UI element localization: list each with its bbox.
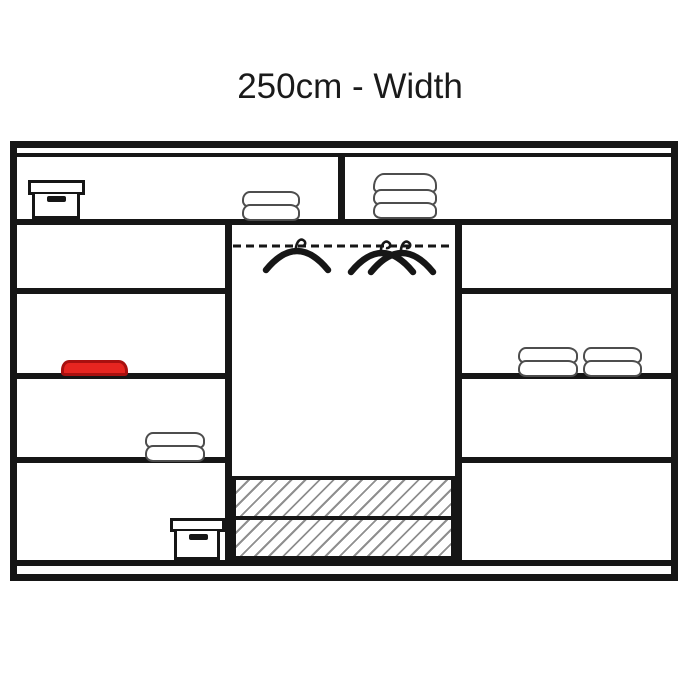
page-title: 250cm - Width — [0, 67, 700, 107]
folded-towels-icon — [373, 173, 437, 219]
top-row-divider — [338, 153, 345, 225]
storage-box-icon — [170, 518, 225, 560]
drawer-front — [236, 520, 451, 556]
right-shelf-line-3 — [459, 457, 671, 463]
left-shelf-line-1 — [17, 288, 228, 294]
hanger-icon — [266, 240, 328, 270]
red-folded-garment-icon — [61, 360, 128, 376]
box-lid — [28, 180, 85, 195]
folded-towels-icon — [583, 347, 642, 377]
storage-box-icon — [28, 180, 85, 219]
floor-line — [17, 560, 671, 566]
folded-towels-icon — [518, 347, 578, 377]
box-lid — [170, 518, 225, 532]
wardrobe-frame — [10, 141, 678, 581]
wardrobe-interior — [17, 148, 671, 574]
hanging-section — [232, 225, 455, 325]
folded-towels-icon — [145, 432, 205, 462]
box-handle-slot — [47, 196, 66, 202]
right-shelf-line-1 — [459, 288, 671, 294]
hanging-rail-and-hangers — [232, 225, 455, 325]
right-section-divider — [455, 219, 462, 566]
box-handle-slot — [189, 534, 208, 540]
drawer-unit — [232, 476, 455, 560]
folded-towels-icon — [242, 191, 300, 221]
drawer-front — [236, 480, 451, 516]
left-section-divider — [225, 219, 232, 566]
